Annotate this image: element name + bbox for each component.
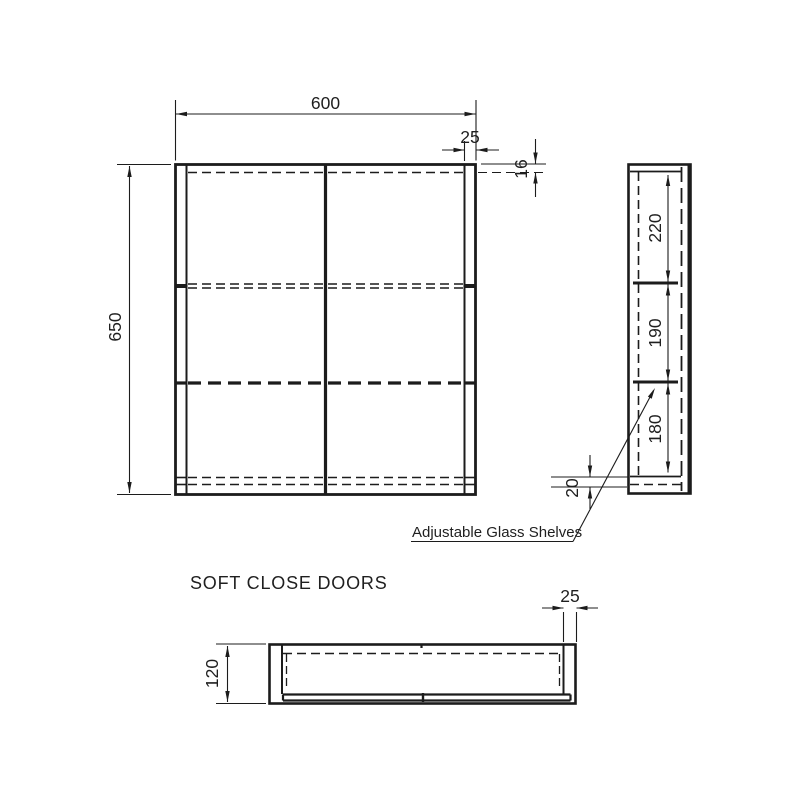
plan-view <box>270 644 576 704</box>
arrowhead <box>666 271 670 282</box>
annotation-label: Adjustable Glass Shelves <box>412 524 582 541</box>
arrowhead <box>533 173 537 184</box>
arrowhead <box>666 175 670 186</box>
arrowhead <box>588 488 592 499</box>
dim-value-section-bottom: 180 <box>645 414 665 443</box>
arrowhead <box>225 646 229 657</box>
dim-value-height: 650 <box>105 312 125 341</box>
arrowhead <box>577 606 588 610</box>
dim-value-depth: 120 <box>202 659 222 688</box>
dim-front-width: 600 <box>176 93 477 161</box>
cabinet-technical-drawing: 600 650 25 16 <box>0 0 800 800</box>
dim-value-side-thickness: 25 <box>460 127 479 147</box>
arrowhead <box>666 285 670 296</box>
dim-front-top-thickness: 16 <box>478 139 546 197</box>
caption-soft-close-doors: SOFT CLOSE DOORS <box>190 573 388 593</box>
dim-value-top-thickness: 16 <box>511 159 531 178</box>
arrowhead <box>553 606 564 610</box>
leader-line <box>573 391 654 542</box>
dim-side-bottom-thickness: 20 <box>551 455 629 509</box>
drawing-sheet: 600 650 25 16 <box>0 0 800 800</box>
arrowhead <box>666 370 670 381</box>
arrowhead <box>465 112 476 116</box>
arrowhead <box>477 148 488 152</box>
annotation-glass-shelves: Adjustable Glass Shelves <box>411 388 655 542</box>
arrowhead <box>127 482 131 493</box>
dim-side-sections: 220 190 180 <box>645 175 670 473</box>
arrowhead <box>666 384 670 395</box>
dim-front-height: 650 <box>105 165 171 495</box>
arrowhead <box>666 462 670 473</box>
arrowhead <box>454 148 465 152</box>
arrowhead <box>176 112 187 116</box>
dim-value-width: 600 <box>311 93 340 113</box>
dim-value-plan-side-thickness: 25 <box>560 586 579 606</box>
dim-front-side-thickness: 25 <box>442 127 499 161</box>
dim-value-section-middle: 190 <box>645 318 665 347</box>
arrowhead <box>225 691 229 702</box>
arrowhead <box>588 466 592 477</box>
dim-plan-depth: 120 <box>202 644 266 704</box>
arrowhead <box>127 166 131 177</box>
dim-value-bottom-thickness: 20 <box>562 478 582 498</box>
dim-plan-side-thickness: 25 <box>542 586 598 642</box>
front-view <box>175 164 476 495</box>
dim-value-section-top: 220 <box>645 213 665 242</box>
leader-arrowhead <box>648 388 655 399</box>
arrowhead <box>533 153 537 164</box>
